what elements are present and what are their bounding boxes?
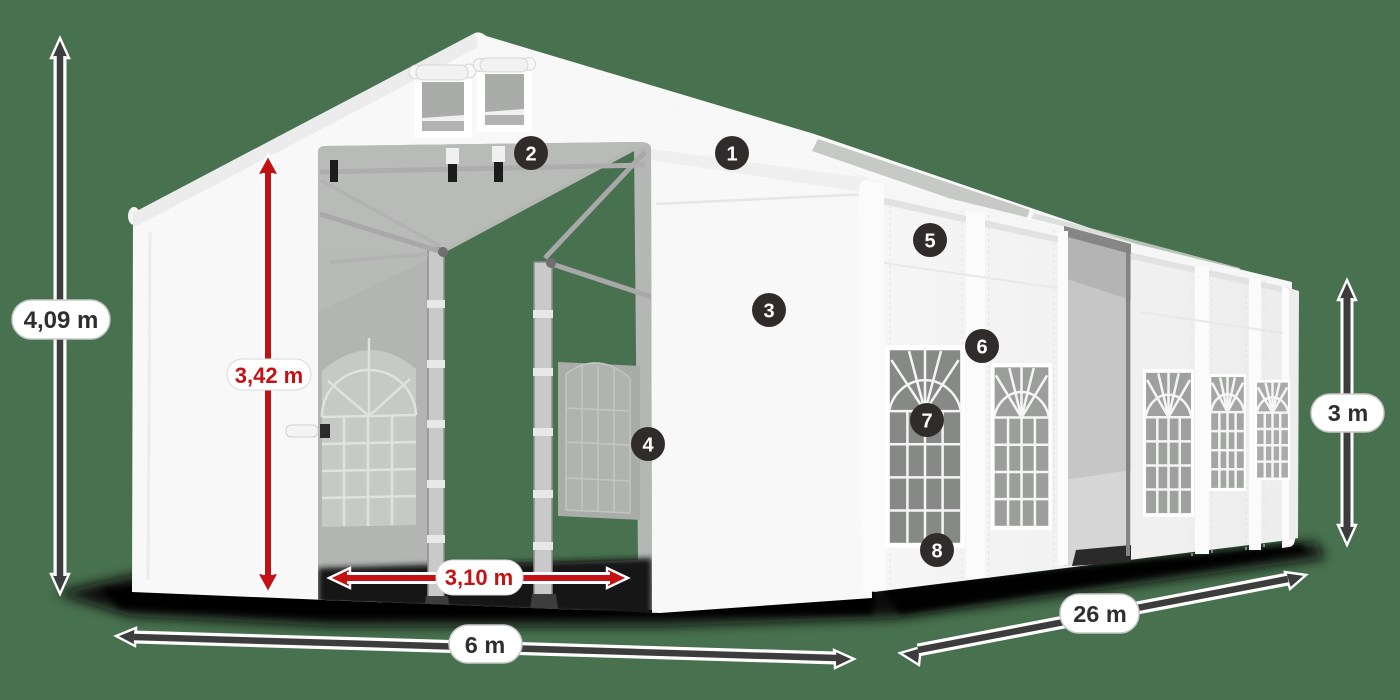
svg-text:6: 6: [976, 337, 987, 359]
svg-text:8: 8: [931, 541, 942, 563]
svg-text:3: 3: [763, 301, 774, 323]
svg-text:3,42 m: 3,42 m: [235, 363, 304, 388]
svg-text:1: 1: [726, 144, 737, 166]
svg-text:4,09 m: 4,09 m: [24, 307, 99, 334]
svg-text:4: 4: [642, 435, 654, 457]
svg-text:2: 2: [525, 144, 536, 166]
svg-text:7: 7: [921, 411, 932, 433]
svg-text:5: 5: [924, 231, 935, 253]
svg-text:3 m: 3 m: [1328, 400, 1369, 426]
svg-text:6 m: 6 m: [465, 632, 506, 658]
svg-text:26 m: 26 m: [1073, 601, 1127, 627]
svg-text:3,10 m: 3,10 m: [445, 565, 514, 590]
